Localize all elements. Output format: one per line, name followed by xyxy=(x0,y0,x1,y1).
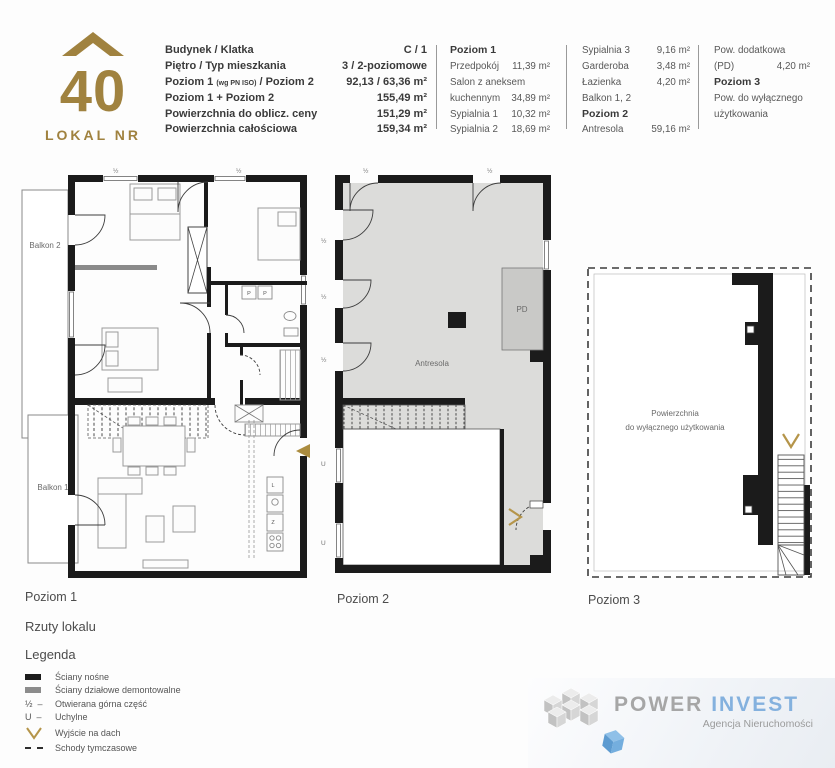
legend-title: Legenda xyxy=(25,647,76,662)
extra-area-row: Pow. do wyłącznego xyxy=(714,91,810,107)
level3-header: Poziom 3 xyxy=(714,75,810,91)
window-marker: ½ xyxy=(321,356,327,364)
extra-area-row: użytkowania xyxy=(714,107,810,123)
room-area-row: Przedpokój11,39 m² xyxy=(450,59,550,75)
legend-item: Ściany nośne xyxy=(25,670,265,684)
room-area-row: Sypialnia 39,16 m² xyxy=(582,43,690,59)
info-row: Budynek / KlatkaC / 1 xyxy=(165,43,427,59)
unit-number: 40 xyxy=(38,63,148,121)
dryer-symbol: P xyxy=(263,291,267,297)
room-area-row: Antresola59,16 m² xyxy=(582,122,690,138)
info-row: Powierzchnia całościowa159,34 m² xyxy=(165,122,427,138)
info-column-rooms2: Sypialnia 39,16 m² Garderoba3,48 m² Łazi… xyxy=(582,43,690,138)
room-label-antresola: Antresola xyxy=(415,359,449,368)
unit-caption: LOKAL NR xyxy=(38,127,148,143)
info-column-level1: Poziom 1 Przedpokój11,39 m² Salon z anek… xyxy=(450,43,550,138)
column-divider xyxy=(566,45,567,129)
floorplan-level3: Powierzchnia do wyłącznego użytkowania xyxy=(580,258,825,590)
partition-wall-icon xyxy=(25,687,55,693)
floorplan-level2: ½ ½ ½ ½ ½ U U xyxy=(316,168,564,592)
legend-item: U – Uchylne xyxy=(25,711,265,725)
exclusive-area-label-line2: do wyłącznego użytkowania xyxy=(625,423,725,432)
info-column-extra: Pow. dodatkowa (PD)4,20 m² Poziom 3 Pow.… xyxy=(714,43,810,122)
floorplan-sheet: 40 LOKAL NR Budynek / KlatkaC / 1 Piętro… xyxy=(0,0,835,768)
window-marker: U xyxy=(321,461,326,468)
info-row: Poziom 1 + Poziom 2155,49 m² xyxy=(165,91,427,107)
plans-section-title: Rzuty lokalu xyxy=(25,619,96,634)
room-area-row: Balkon 1, 2 xyxy=(582,91,690,107)
plan3-caption: Poziom 3 xyxy=(588,593,640,607)
room-label-pd: PD xyxy=(516,305,527,314)
wall-detail xyxy=(747,326,754,333)
column-divider xyxy=(698,45,699,129)
void-wall xyxy=(500,429,504,565)
wall-detail xyxy=(745,506,752,513)
legend-item: Wyjście na dach xyxy=(25,724,265,741)
window-marker: ½ xyxy=(363,168,369,175)
pd-zone: PD xyxy=(502,268,543,350)
fridge-symbol: L xyxy=(271,483,274,489)
window-marker: ½ xyxy=(487,168,493,175)
exclusive-area-label-line1: Powierzchnia xyxy=(651,409,699,418)
load-bearing-wall-icon xyxy=(25,674,55,680)
room-area-row: Łazienka4,20 m² xyxy=(582,75,690,91)
entrance-arrow-icon xyxy=(296,444,310,458)
window-marker: U xyxy=(321,540,326,547)
info-row: Piętro / Typ mieszkania3 / 2-poziomowe xyxy=(165,59,427,75)
info-row: Powierzchnia do oblicz. ceny151,29 m² xyxy=(165,107,427,123)
kitchen-units xyxy=(267,477,283,551)
window-marker: ½ xyxy=(321,237,327,245)
brand-panel: POWER INVEST Agencja Nieruchomości xyxy=(528,678,835,768)
temporary-stairs-icon xyxy=(25,747,55,749)
room-area-row: Garderoba3,48 m² xyxy=(582,59,690,75)
legend-item: Ściany działowe demontowalne xyxy=(25,684,265,698)
stairs-level2 xyxy=(343,398,465,429)
plan1-caption: Poziom 1 xyxy=(25,590,77,604)
level2-header: Poziom 2 xyxy=(582,107,690,123)
unit-logo: 40 LOKAL NR xyxy=(38,28,148,143)
brand-power: POWER xyxy=(614,693,703,716)
legend-item: ½ – Otwierana górna część xyxy=(25,697,265,711)
void-opening xyxy=(343,429,500,565)
window-marker: ½ xyxy=(236,168,242,175)
info-row: Poziom 1 (wg PN ISO) / Poziom 2 92,13 / … xyxy=(165,75,427,91)
column-divider xyxy=(436,45,437,129)
extra-area-row: (PD)4,20 m² xyxy=(714,59,810,75)
room-label-balkon1: Balkon 1 xyxy=(37,483,69,492)
legend-item: Schody tymczasowe xyxy=(25,741,265,755)
roof-icon xyxy=(60,28,126,58)
window-marker: ½ xyxy=(113,168,119,175)
blue-cube xyxy=(601,728,626,756)
structural-column xyxy=(448,312,466,328)
extra-area-row: Pow. dodatkowa xyxy=(714,43,810,59)
plan2-caption: Poziom 2 xyxy=(337,592,389,606)
room-area-row: Sypialnia 110,32 m² xyxy=(450,107,550,123)
level1-header: Poziom 1 xyxy=(450,43,550,59)
room-label-balkon2: Balkon 2 xyxy=(29,241,61,250)
brand-wordmark: POWER INVEST xyxy=(614,693,799,717)
brand-tagline: Agencja Nieruchomości xyxy=(648,718,813,730)
brand-invest: INVEST xyxy=(711,693,799,716)
room-area-row: kuchennym34,89 m² xyxy=(450,91,550,107)
info-column-main: Budynek / KlatkaC / 1 Piętro / Typ miesz… xyxy=(165,43,427,138)
room-area-row: Salon z aneksem xyxy=(450,75,550,91)
room-area-row: Sypialnia 218,69 m² xyxy=(450,122,550,138)
roof-exit-icon xyxy=(25,726,55,740)
balcony-2: Balkon 2 xyxy=(22,190,68,438)
floorplan-level1: ½ ½ ½ Balkon 2 Balkon 1 xyxy=(18,168,318,592)
legend: Ściany nośne Ściany działowe demontowaln… xyxy=(25,670,265,755)
washer-symbol: P xyxy=(247,291,251,297)
window-marker: ½ xyxy=(321,293,327,301)
